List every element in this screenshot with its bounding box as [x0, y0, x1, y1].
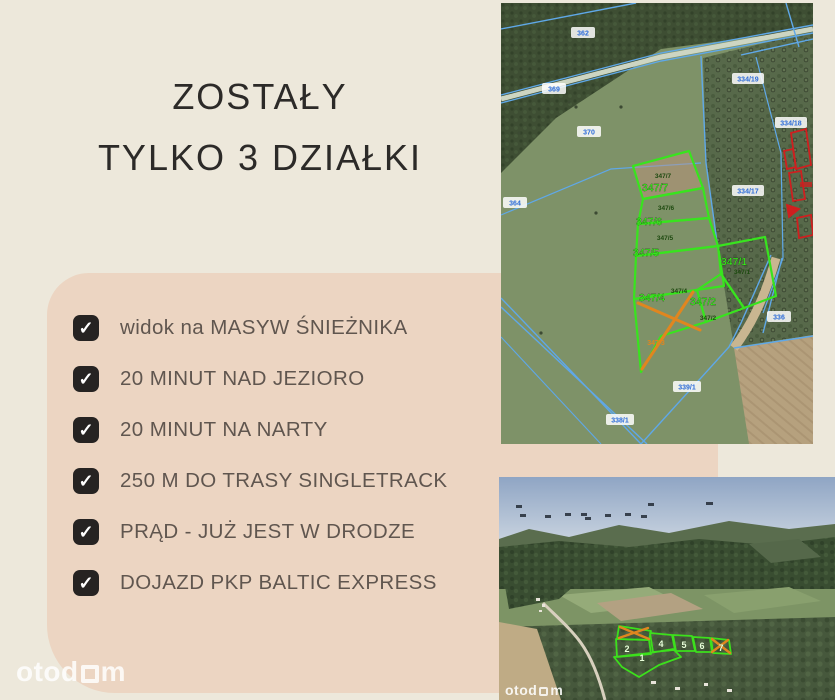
parcel-label: 347/2	[700, 315, 717, 322]
cadastral-label: 364	[509, 201, 521, 208]
parcel-label: 347/7	[655, 173, 672, 180]
feature-item: ✓ 20 MINUT NA NARTY	[73, 416, 448, 443]
checkbox-checked-icon: ✓	[73, 468, 99, 494]
promo-banner: ZOSTAŁY TYLKO 3 DZIAŁKI ✓ widok na MASYW…	[0, 0, 835, 700]
feature-label: 20 MINUT NAD JEZIORO	[120, 367, 365, 391]
otodom-logo-text: otod	[505, 682, 537, 698]
parcel-number: 6	[699, 641, 704, 651]
feature-item: ✓ widok na MASYW ŚNIEŻNIKA	[73, 314, 448, 341]
parcel-label: 347/1	[721, 256, 747, 268]
feature-label: widok na MASYW ŚNIEŻNIKA	[120, 316, 408, 340]
checkbox-checked-icon: ✓	[73, 519, 99, 545]
otodom-logo-text: otod	[16, 656, 79, 688]
parcel-number: 7	[718, 643, 723, 653]
checkbox-checked-icon: ✓	[73, 315, 99, 341]
parcel-label: 347/6	[636, 216, 662, 228]
parcel-number: 2	[624, 644, 629, 654]
checkbox-checked-icon: ✓	[73, 366, 99, 392]
terrain-3d-map-image: 2 4 5 6 7 1	[499, 477, 835, 700]
headline-line2: TYLKO 3 DZIAŁKI	[40, 127, 480, 188]
checkbox-checked-icon: ✓	[73, 417, 99, 443]
otodom-square-icon	[81, 665, 99, 683]
feature-label: PRĄD - JUŻ JEST W DRODZE	[120, 520, 415, 544]
features-list: ✓ widok na MASYW ŚNIEŻNIKA ✓ 20 MINUT NA…	[73, 314, 448, 596]
cadastral-label: 338/1	[611, 418, 629, 425]
parcel-label: 347/5	[633, 247, 659, 259]
otodom-logo-text: m	[101, 656, 126, 688]
terrain-3d-scene	[499, 477, 835, 700]
parcel-label: 347/1	[734, 269, 751, 276]
parcel-number: 5	[681, 640, 686, 650]
parcel-label: 347/4	[671, 288, 688, 295]
parcel-label: 347/6	[658, 205, 675, 212]
parcel-label: 347/5	[657, 235, 674, 242]
feature-label: 20 MINUT NA NARTY	[120, 418, 328, 442]
feature-item: ✓ DOJAZD PKP BALTIC EXPRESS	[73, 569, 448, 596]
feature-label: DOJAZD PKP BALTIC EXPRESS	[120, 571, 437, 595]
cadastral-label: 362	[577, 31, 589, 38]
parcel-number: 4	[658, 639, 663, 649]
cadastral-label: 334/17	[737, 189, 759, 196]
red-cadastral-label	[800, 182, 812, 187]
parcel-number: 1	[639, 653, 644, 663]
otodom-square-icon	[539, 687, 548, 696]
otodom-logo: otodm	[16, 656, 126, 688]
parcel-label: 347/4	[639, 292, 665, 304]
checkbox-checked-icon: ✓	[73, 570, 99, 596]
feature-item: ✓ 250 M DO TRASY SINGLETRACK	[73, 467, 448, 494]
sold-parcel-label: 347/3	[647, 340, 665, 347]
otodom-logo-small: otodm	[505, 682, 563, 698]
parcel-label: 347/2	[690, 296, 716, 308]
cadastral-label: 334/19	[737, 77, 759, 84]
cadastral-label: 370	[583, 130, 595, 137]
feature-item: ✓ PRĄD - JUŻ JEST W DRODZE	[73, 518, 448, 545]
cadastral-label: 334/18	[780, 121, 802, 128]
cadastral-satellite-map-image: 347/7 347/6 347/5 347/4 347/1 347/2 347/…	[501, 3, 813, 444]
headline-line1: ZOSTAŁY	[40, 66, 480, 127]
feature-label: 250 M DO TRASY SINGLETRACK	[120, 469, 448, 493]
otodom-logo-text: m	[550, 682, 563, 698]
feature-item: ✓ 20 MINUT NAD JEZIORO	[73, 365, 448, 392]
cadastral-label: 336	[773, 315, 785, 322]
headline: ZOSTAŁY TYLKO 3 DZIAŁKI	[40, 66, 480, 188]
parcel-label: 347/7	[642, 182, 668, 194]
cadastral-label: 339/1	[678, 385, 696, 392]
cadastral-label: 369	[548, 87, 560, 94]
